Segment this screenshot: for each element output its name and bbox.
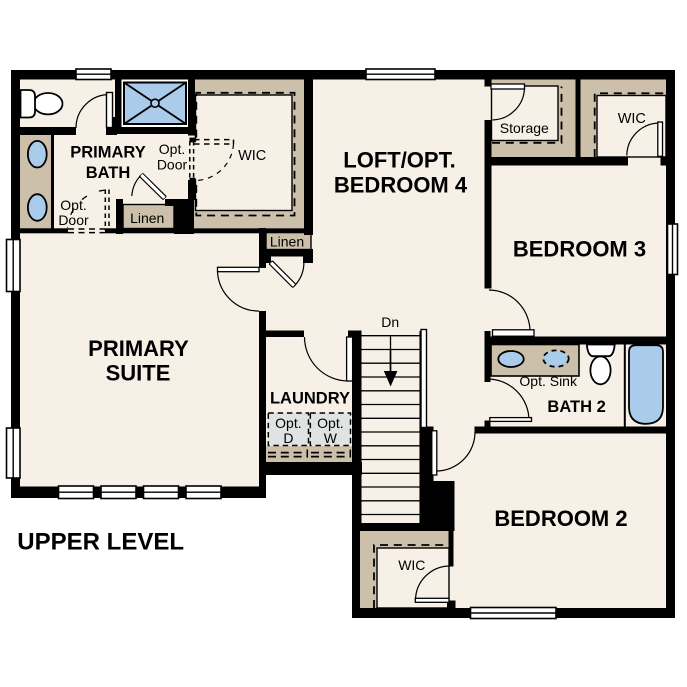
svg-text:Linen: Linen [130, 210, 164, 226]
svg-text:Opt.: Opt. [159, 141, 185, 157]
svg-text:Storage: Storage [500, 120, 549, 136]
svg-text:Opt.: Opt. [317, 415, 343, 431]
svg-text:Opt.: Opt. [275, 415, 301, 431]
svg-text:BATH: BATH [86, 164, 131, 182]
svg-text:W: W [324, 430, 338, 446]
svg-text:Door: Door [58, 212, 89, 228]
svg-text:D: D [283, 430, 293, 446]
svg-text:BATH 2: BATH 2 [547, 398, 605, 416]
svg-text:Door: Door [157, 156, 188, 172]
svg-text:Opt.: Opt. [60, 197, 86, 213]
svg-text:WIC: WIC [238, 148, 266, 164]
svg-text:Linen: Linen [270, 233, 304, 249]
svg-text:BEDROOM 2: BEDROOM 2 [494, 506, 627, 531]
svg-text:PRIMARY: PRIMARY [70, 144, 145, 162]
svg-text:Opt. Sink: Opt. Sink [519, 373, 578, 389]
svg-text:BEDROOM 4: BEDROOM 4 [334, 172, 468, 197]
svg-text:SUITE: SUITE [106, 361, 171, 386]
svg-text:PRIMARY: PRIMARY [88, 336, 189, 361]
svg-text:Dn: Dn [381, 314, 399, 330]
svg-text:WIC: WIC [398, 557, 425, 573]
svg-text:UPPER LEVEL: UPPER LEVEL [17, 529, 184, 556]
svg-text:WIC: WIC [618, 111, 646, 127]
svg-text:BEDROOM 3: BEDROOM 3 [513, 237, 646, 262]
svg-text:LOFT/OPT.: LOFT/OPT. [343, 148, 455, 173]
svg-text:LAUNDRY: LAUNDRY [270, 389, 350, 407]
